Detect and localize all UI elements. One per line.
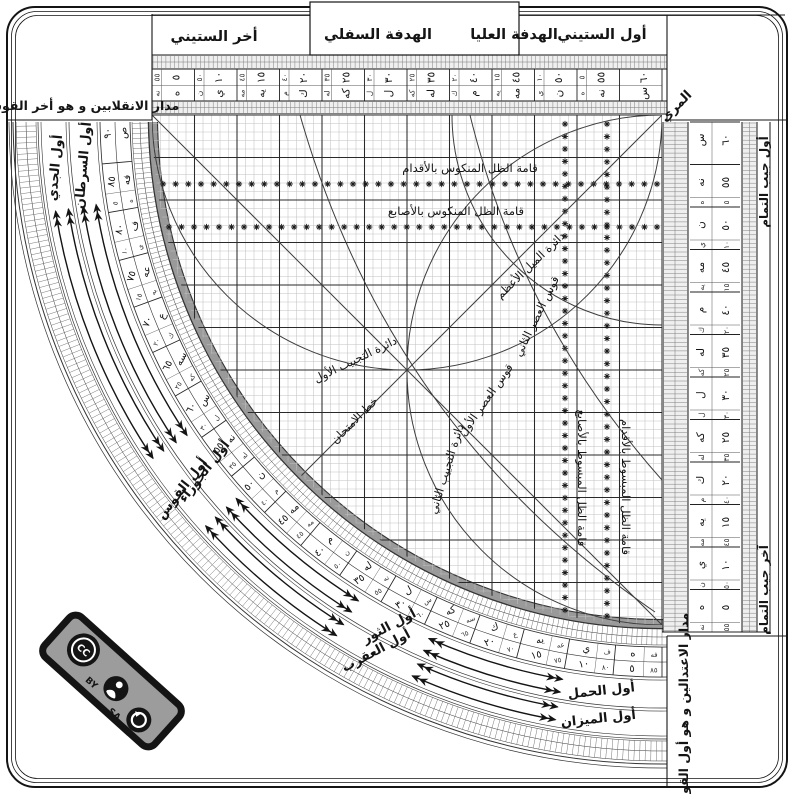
ruler-abjad: س — [638, 87, 650, 100]
ruler-abjad: ل — [695, 391, 707, 399]
ruler-number: ٥ — [171, 75, 183, 81]
ruler-minor-abjad: يه — [697, 284, 706, 290]
ruler-abjad: ن — [695, 221, 707, 229]
ruler-minor-abjad: ه — [697, 200, 706, 204]
arc-degree-label: ١٠ — [578, 658, 590, 670]
tab-upper-sight: الهدفة العليا — [470, 27, 558, 43]
ruler-abjad: ك — [695, 476, 707, 485]
mabsut-feet-label: قامة الظل المبسوط بالأقدام — [618, 419, 633, 555]
ruler-minor-abjad: ل — [697, 412, 706, 417]
ruler-minor-number: ٤٠ — [722, 496, 731, 504]
ruler-number: ٤٥ — [720, 262, 732, 273]
ruler-number: ٥٠ — [720, 219, 732, 230]
ruler-number: ٤٠ — [468, 72, 480, 83]
ruler-abjad: له — [695, 348, 707, 357]
ruler-minor-abjad: نه — [153, 90, 162, 96]
ruler-minor-number: ٢٠ — [722, 326, 731, 334]
cosine-first-label: أول جيب التمام — [756, 136, 772, 227]
ruler-abjad: م — [695, 307, 707, 314]
arc-abjad-label: ص — [118, 127, 129, 139]
arc-minor-abjad: عه — [556, 641, 565, 650]
ruler-minor-abjad: ل — [365, 91, 374, 96]
ruler-minor-number: ١٥ — [722, 283, 731, 291]
ruler-abjad: له — [426, 89, 438, 98]
ruler-minor-abjad: ه — [578, 91, 587, 95]
ruler-minor-number: ٣٥ — [323, 73, 332, 81]
arc-minor-abjad: فه — [650, 651, 657, 659]
ruler-number: ٢٥ — [341, 72, 353, 83]
arc-abjad-label: ه — [630, 648, 636, 659]
ruler-number: ٢٠ — [298, 72, 310, 83]
ruler-minor-abjad: كه — [408, 89, 417, 97]
ruler-abjad: يه — [256, 89, 268, 98]
ruler-abjad: ي — [213, 89, 225, 97]
ruler-minor-abjad: م — [280, 91, 289, 96]
ruler-number: ٥ — [720, 605, 732, 611]
equinox-orbit-label: مدار الاعتدالين و هو أول القوس — [675, 613, 691, 794]
ruler-minor-number: ٢٥ — [722, 368, 731, 376]
ruler-number: ١٠ — [213, 72, 225, 83]
ruler-abjad: س — [695, 134, 707, 147]
ruler-abjad: كه — [341, 88, 353, 99]
ruler-number: ١٠ — [720, 559, 732, 570]
ruler-minor-abjad: له — [697, 454, 706, 460]
ruler-minor-abjad: ك — [697, 327, 706, 333]
ruler-abjad: ك — [298, 89, 310, 98]
ruler-number: ٥٠ — [553, 72, 565, 83]
arc-abjad-label: ف — [129, 220, 142, 232]
ruler-minor-number: ٣٥ — [722, 453, 731, 461]
ruler-abjad: نه — [695, 178, 707, 187]
ruler-abjad: مه — [511, 88, 523, 99]
ruler-number: ٤٠ — [720, 304, 732, 315]
ruler-minor-number: ٥٥ — [722, 623, 731, 631]
tab-end-sixty: أخر الستيني — [170, 27, 257, 45]
ruler-number: ٣٠ — [720, 389, 732, 400]
ruler-number: ١٥ — [720, 517, 732, 528]
ruler-minor-abjad: ن — [195, 91, 204, 97]
ruler-minor-abjad: م — [697, 497, 706, 502]
ruler-minor-number: ٣٠ — [722, 411, 731, 419]
tab-lower-sight: الهدفة السفلي — [324, 27, 432, 43]
ruler-abjad: م — [468, 90, 480, 97]
arc-minor-degree: ٨٥ — [650, 666, 658, 674]
ruler-minor-number: ٤٥ — [722, 538, 731, 546]
cosine-last-label: آخر جيب التمام — [756, 544, 772, 635]
ruler-abjad: ه — [171, 91, 183, 97]
ruler-minor-number: ٤٠ — [280, 73, 289, 81]
ruler-abjad: نه — [596, 89, 608, 98]
ruler-abjad: مه — [695, 262, 707, 273]
ruler-minor-abjad: نه — [697, 624, 706, 630]
ruler-abjad: ن — [553, 90, 565, 98]
ruler-abjad: ي — [695, 561, 707, 569]
arc-minor-abjad: ف — [603, 648, 611, 657]
ruler-number: ٥٥ — [720, 177, 732, 188]
ruler-minor-number: ١٠ — [535, 73, 544, 81]
ruler-minor-number: ٥٥ — [153, 73, 162, 81]
arc-degree-label: ٨٠ — [113, 223, 126, 236]
ruler-minor-abjad: ي — [697, 242, 706, 248]
ruler-minor-number: ٥٠ — [195, 73, 204, 81]
ruler-number: ٦٠ — [720, 134, 732, 145]
ruler-minor-abjad: كه — [697, 368, 706, 376]
ruler-minor-abjad: ي — [535, 90, 544, 96]
sine-quadrant-diagram: ص٩٠فه٨٥ه٥ف٨٠ي١٠عه٧٥يه١٥ع٧٠ك٢٠سه٦٥كه٢٥س٦٠… — [0, 0, 794, 794]
ruler-minor-number: ٥ — [578, 75, 587, 79]
ruler-minor-number: ٣٠ — [365, 73, 374, 81]
ruler-abjad: كه — [695, 432, 707, 443]
hatch-band — [663, 122, 688, 632]
nakus-feet-label: قامة الظل المنكوس بالأقدام — [402, 161, 537, 176]
ruler-minor-number: ٢٠ — [450, 73, 459, 81]
ruler-minor-number: ٢٥ — [408, 73, 417, 81]
ruler-minor-number: ١٥ — [493, 73, 502, 81]
ruler-minor-abjad: ك — [450, 90, 459, 96]
ruler-minor-abjad: مه — [238, 89, 247, 97]
solstice-orbit-label: مدار الانقلابين و هو أخر القوس — [0, 97, 179, 113]
ruler-minor-abjad: يه — [493, 90, 502, 96]
arc-minor-degree: ٨٠ — [601, 663, 609, 672]
ruler-minor-number: ٤٥ — [238, 73, 247, 81]
ruler-minor-abjad: له — [323, 90, 332, 96]
ruler-number: ٣٥ — [426, 72, 438, 83]
ruler-minor-number: ٥ — [722, 200, 731, 204]
ruler-abjad: ه — [695, 605, 707, 611]
ruler-number: ٢٥ — [720, 432, 732, 443]
ruler-number: ٤٥ — [511, 72, 523, 83]
ruler-number: ٣٥ — [720, 347, 732, 358]
ruler-abjad: ل — [383, 90, 395, 98]
ruler-minor-number: ٥٠ — [722, 581, 731, 589]
arc-degree-label: ٨٥ — [106, 176, 118, 188]
ruler-abjad: يه — [695, 518, 707, 527]
ruler-number: ٣٠ — [383, 72, 395, 83]
arc-degree-label: ٩٠ — [103, 128, 114, 139]
ruler-number: ٢٠ — [720, 474, 732, 485]
ruler-number: ١٥ — [256, 72, 268, 83]
ruler-minor-abjad: مه — [697, 538, 706, 546]
ruler-minor-number: ١٠ — [722, 241, 731, 249]
mabsut-digits-label: قامة الظل المبسوط بالأصابع — [574, 410, 589, 547]
ruler-number: ٥٥ — [596, 72, 608, 83]
nakus-digits-label: قامة الظل المنكوس بالأصابع — [388, 204, 524, 219]
tab-first-sixty: أول الستيني — [557, 25, 646, 43]
ruler-minor-abjad: ن — [697, 582, 706, 588]
arc-abjad-label: فه — [121, 174, 133, 186]
quadrant-svg: ص٩٠فه٨٥ه٥ف٨٠ي١٠عه٧٥يه١٥ع٧٠ك٢٠سه٦٥كه٢٥س٦٠… — [0, 0, 794, 794]
ruler-number: ٦٠ — [638, 72, 650, 83]
arc-degree-label: ٥ — [629, 664, 635, 675]
